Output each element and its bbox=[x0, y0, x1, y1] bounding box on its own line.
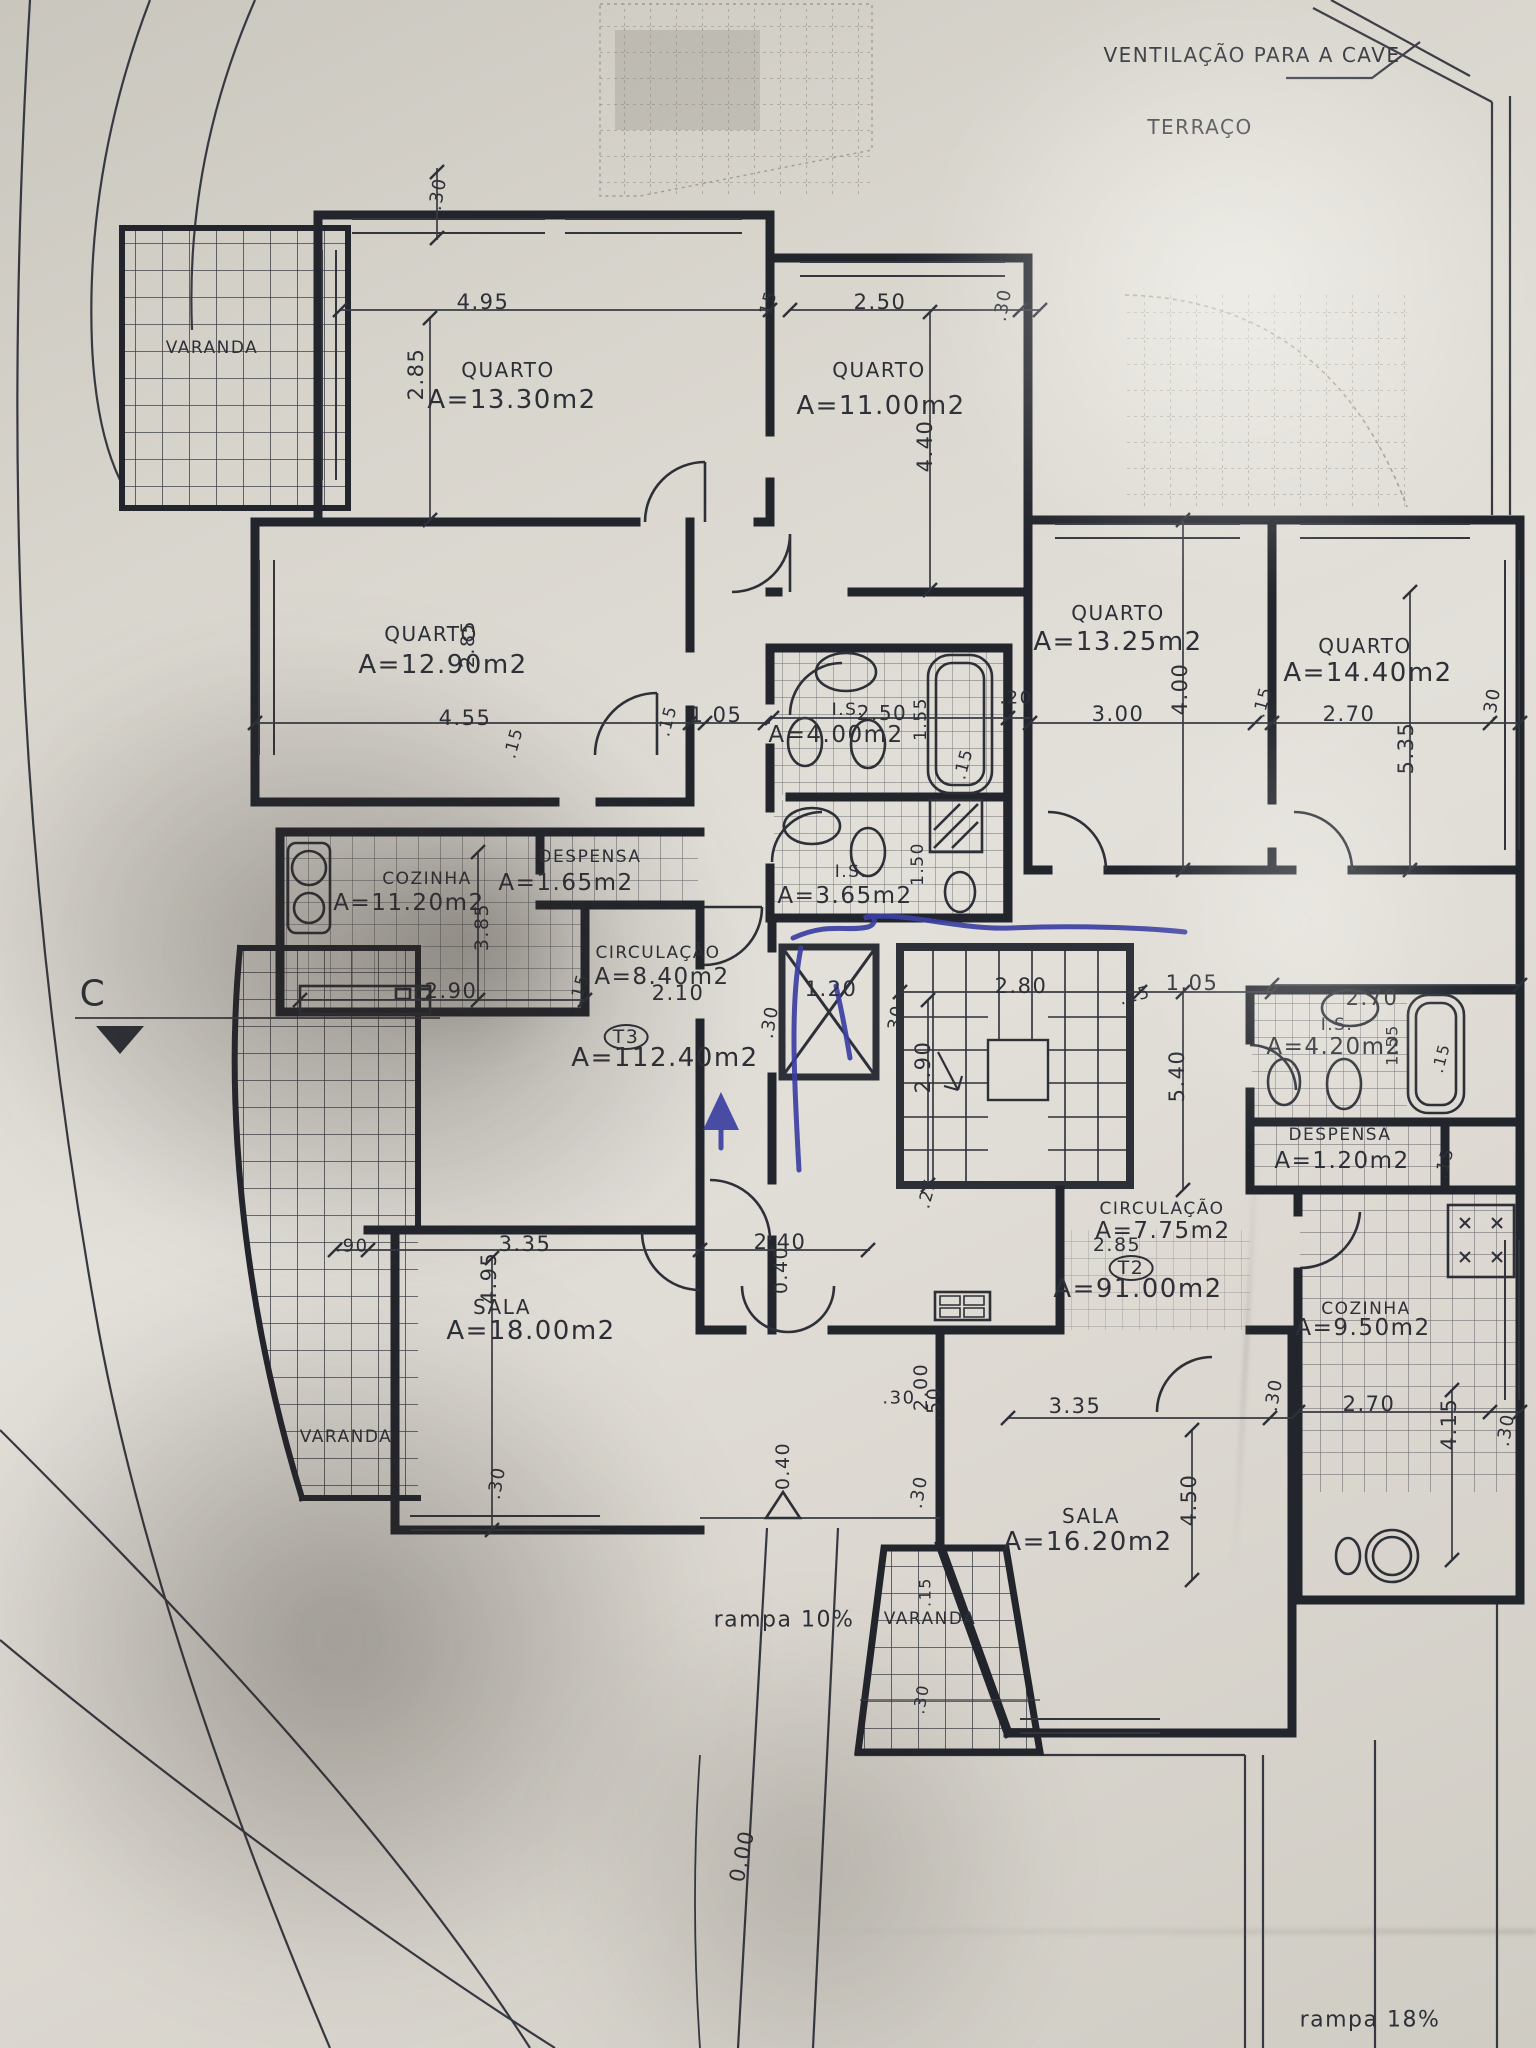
dim: 2.90 bbox=[425, 979, 478, 1003]
dim: 4.95 bbox=[457, 290, 510, 314]
area-quarto-3: A=12.90m2 bbox=[358, 650, 527, 680]
note-terraco: TERRAÇO bbox=[1147, 115, 1252, 139]
area-despensa-1: A=1.65m2 bbox=[498, 870, 633, 896]
dim: 4.00 bbox=[1168, 663, 1192, 716]
dim: 2.70 bbox=[1343, 1392, 1396, 1416]
dim: 2.85 bbox=[1093, 1234, 1141, 1256]
dim: 5.40 bbox=[1165, 1050, 1189, 1103]
area-cozinha-1: A=11.20m2 bbox=[333, 890, 484, 916]
area-t3-total: A=112.40m2 bbox=[571, 1043, 758, 1073]
room-quarto-1: QUARTO bbox=[461, 358, 554, 382]
dim: .15 bbox=[916, 1577, 935, 1607]
dim: .90 bbox=[335, 1236, 368, 1257]
room-despensa-1: DESPENSA bbox=[538, 847, 641, 867]
dim: 5.35 bbox=[1394, 722, 1418, 775]
room-is-2: I.S. bbox=[835, 862, 868, 882]
area-quarto-4: A=13.25m2 bbox=[1033, 627, 1202, 657]
area-sala-1: A=18.00m2 bbox=[446, 1316, 615, 1346]
area-cozinha-2: A=9.50m2 bbox=[1295, 1315, 1430, 1341]
room-cozinha-1: COZINHA bbox=[382, 869, 472, 889]
area-quarto-1: A=13.30m2 bbox=[427, 385, 596, 415]
area-quarto-5: A=14.40m2 bbox=[1283, 658, 1452, 688]
note-rampa-18: rampa 18% bbox=[1300, 2008, 1441, 2033]
pen-vertical-stroke bbox=[794, 948, 801, 1170]
room-quarto-4: QUARTO bbox=[1071, 601, 1164, 625]
dim: 2.50 bbox=[854, 290, 907, 314]
dim: 2.70 bbox=[1323, 702, 1376, 726]
note-rampa-10: rampa 10% bbox=[714, 1608, 855, 1633]
room-varanda-topleft: VARANDA bbox=[166, 338, 259, 358]
dim: 1.50 bbox=[908, 842, 928, 886]
room-quarto-2: QUARTO bbox=[832, 358, 925, 382]
area-is-1: A=4.00m2 bbox=[768, 722, 903, 748]
dim: 2.10 bbox=[652, 981, 705, 1005]
dim: 2.70 bbox=[1346, 986, 1399, 1010]
dim: 2.90 bbox=[911, 1041, 935, 1094]
room-is-3: I.S. bbox=[1321, 1015, 1354, 1035]
markers bbox=[96, 1026, 800, 1518]
dim: 1.55 bbox=[1383, 1024, 1402, 1066]
dim: .20 bbox=[999, 688, 1032, 709]
room-despensa-2: DESPENSA bbox=[1288, 1125, 1391, 1145]
note-ventilacao: VENTILAÇÃO PARA A CAVE bbox=[1103, 43, 1400, 67]
room-varanda-bottom: VARANDA bbox=[884, 1609, 977, 1629]
dim: 1.05 bbox=[690, 703, 743, 727]
area-is-3: A=4.20m2 bbox=[1266, 1034, 1401, 1060]
dim: .50 bbox=[923, 1387, 945, 1422]
dim: 1.55 bbox=[911, 697, 931, 741]
dim: 2.85 bbox=[404, 348, 428, 401]
dim: 4.95 bbox=[477, 1252, 501, 1305]
dim: 3.00 bbox=[1092, 702, 1145, 726]
dim: 4.15 bbox=[1437, 1398, 1461, 1451]
section-cut-triangle bbox=[96, 1026, 144, 1054]
dim: 2.80 bbox=[995, 974, 1048, 998]
dim: 3.35 bbox=[1049, 1394, 1102, 1418]
area-is-2: A=3.65m2 bbox=[777, 883, 912, 909]
room-circulacao-1: CIRCULAÇÃO bbox=[596, 943, 721, 963]
area-t2-total: A=91.00m2 bbox=[1053, 1274, 1222, 1304]
dim: 4.40 bbox=[913, 420, 937, 473]
dim: 1.05 bbox=[1166, 971, 1219, 995]
area-sala-2: A=16.20m2 bbox=[1003, 1527, 1172, 1557]
section-marker-c: C bbox=[80, 974, 107, 1015]
dim: 4.50 bbox=[1177, 1474, 1201, 1527]
room-sala-2: SALA bbox=[1062, 1504, 1120, 1528]
floorplan-photo: VENTILAÇÃO PARA A CAVETERRAÇOVARANDAQUAR… bbox=[0, 0, 1536, 2048]
level-0.40: 0.40 bbox=[772, 1442, 794, 1490]
room-quarto-5: QUARTO bbox=[1318, 634, 1411, 658]
dim: 1.20 bbox=[805, 977, 858, 1001]
room-varanda-left: VARANDA bbox=[300, 1427, 393, 1447]
level-triangle bbox=[766, 1492, 800, 1518]
dim: 4.55 bbox=[439, 706, 492, 730]
area-despensa-2: A=1.20m2 bbox=[1274, 1148, 1409, 1174]
room-circulacao-2: CIRCULAÇÃO bbox=[1100, 1199, 1225, 1219]
dim: 0.40 bbox=[770, 1246, 792, 1294]
area-quarto-2: A=11.00m2 bbox=[796, 391, 965, 421]
dim: 3.35 bbox=[499, 1232, 552, 1256]
dim: 3.85 bbox=[471, 903, 493, 951]
pen-arrow-head bbox=[703, 1092, 739, 1130]
dim: 2.85 bbox=[457, 620, 479, 668]
